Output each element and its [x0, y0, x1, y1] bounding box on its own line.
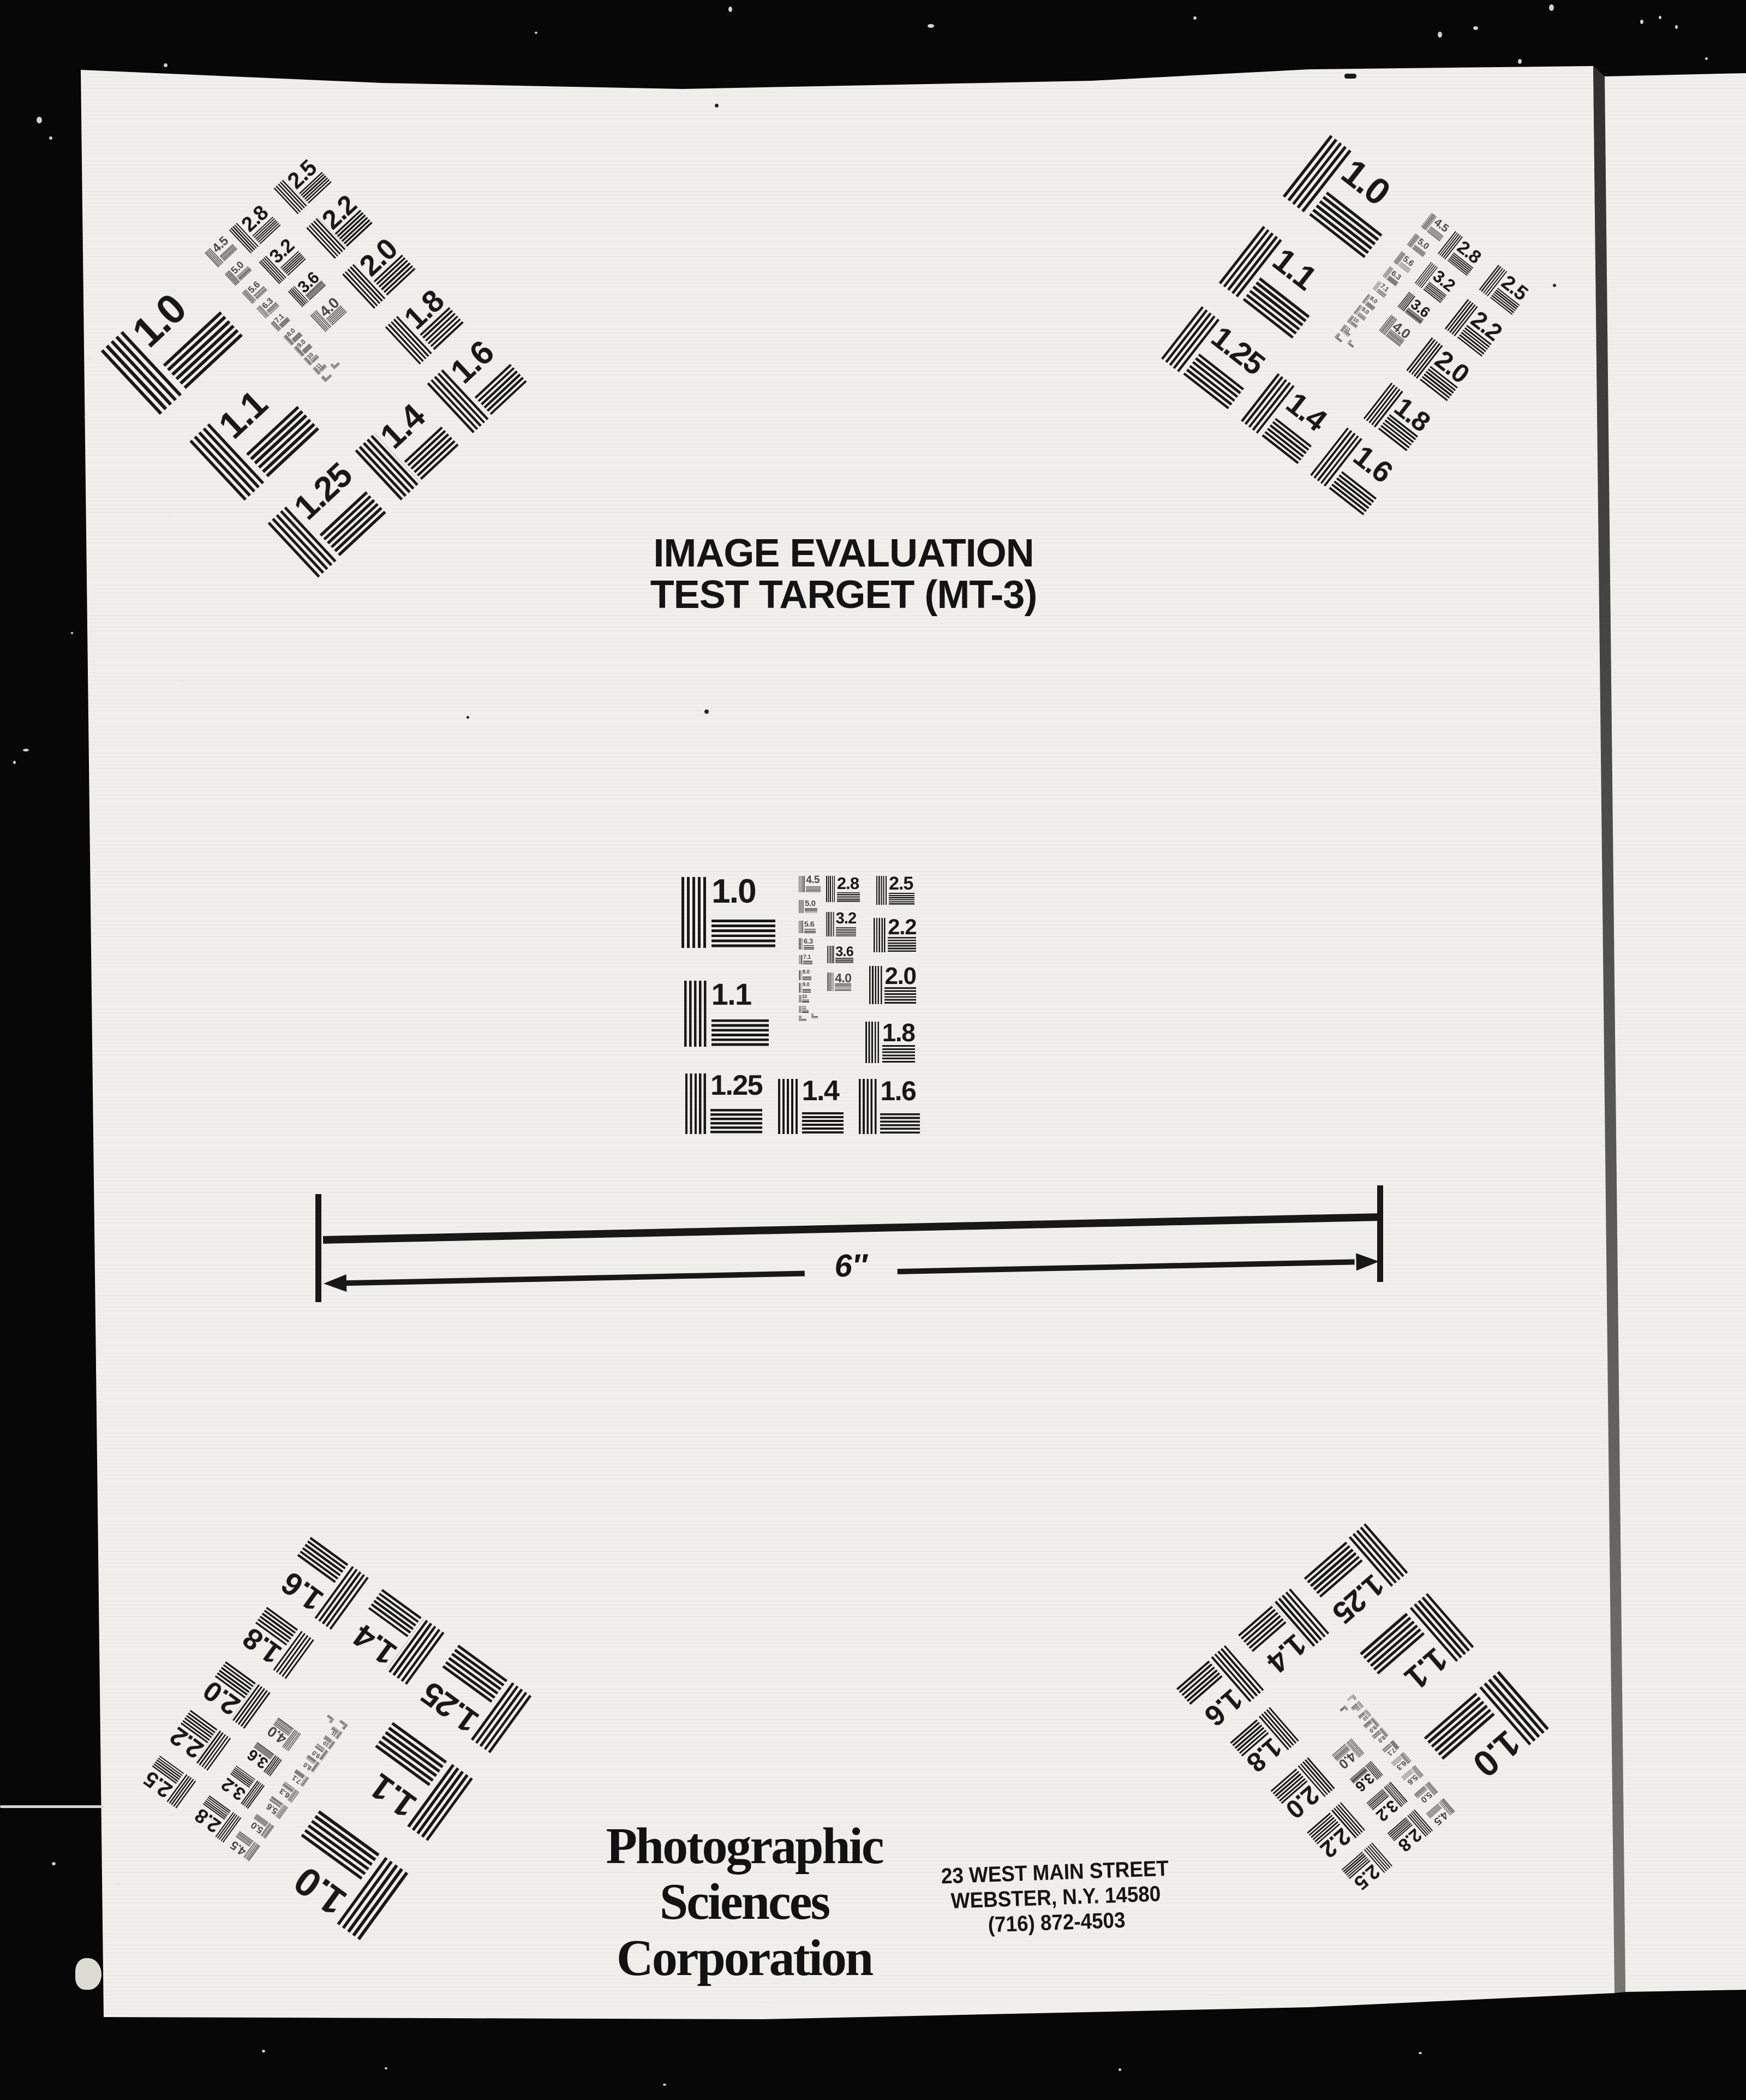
- dust-speck: [52, 1862, 56, 1865]
- dust-speck: [1549, 4, 1554, 11]
- dust-speck: [117, 1882, 120, 1886]
- ink-speck: [715, 104, 719, 108]
- dust-speck: [169, 515, 171, 517]
- dust-speck: [1659, 16, 1661, 19]
- ink-dash: [1344, 74, 1356, 79]
- dust-speck: [164, 63, 168, 67]
- dust-speck: [663, 2084, 666, 2086]
- dust-speck: [928, 24, 934, 28]
- dust-speck: [1119, 2068, 1121, 2071]
- dust-speck: [1438, 32, 1442, 38]
- dust-speck: [385, 2067, 387, 2069]
- dust-speck: [85, 415, 87, 419]
- dust-speck: [87, 356, 92, 362]
- dust-speck: [1675, 25, 1678, 29]
- dust-blob: [75, 1958, 101, 1990]
- ink-speck: [1553, 284, 1556, 287]
- dust-speck: [37, 117, 42, 123]
- dust-speck: [23, 749, 29, 751]
- dust-speck: [1640, 20, 1643, 24]
- dust-speck: [1193, 16, 1197, 20]
- dust-speck: [1518, 59, 1522, 64]
- dust-speck: [13, 761, 16, 764]
- dust-speck: [262, 2050, 265, 2053]
- dust-speck: [535, 32, 537, 34]
- dust-speck: [1473, 26, 1478, 30]
- dust-speck: [71, 632, 73, 634]
- ink-speck: [467, 716, 469, 719]
- dust-speck: [728, 7, 732, 12]
- dust-speck: [1705, 57, 1708, 60]
- ink-speck: [704, 709, 709, 714]
- dust-speck: [181, 680, 184, 683]
- film-dust-layer: [0, 0, 1746, 2100]
- dust-speck: [49, 136, 52, 140]
- scratch-mark: [0, 1805, 104, 1808]
- scanned-microfilm-frame: IMAGE EVALUATION TEST TARGET (MT-3) 1.01…: [0, 0, 1746, 2100]
- dust-speck: [1419, 2052, 1422, 2054]
